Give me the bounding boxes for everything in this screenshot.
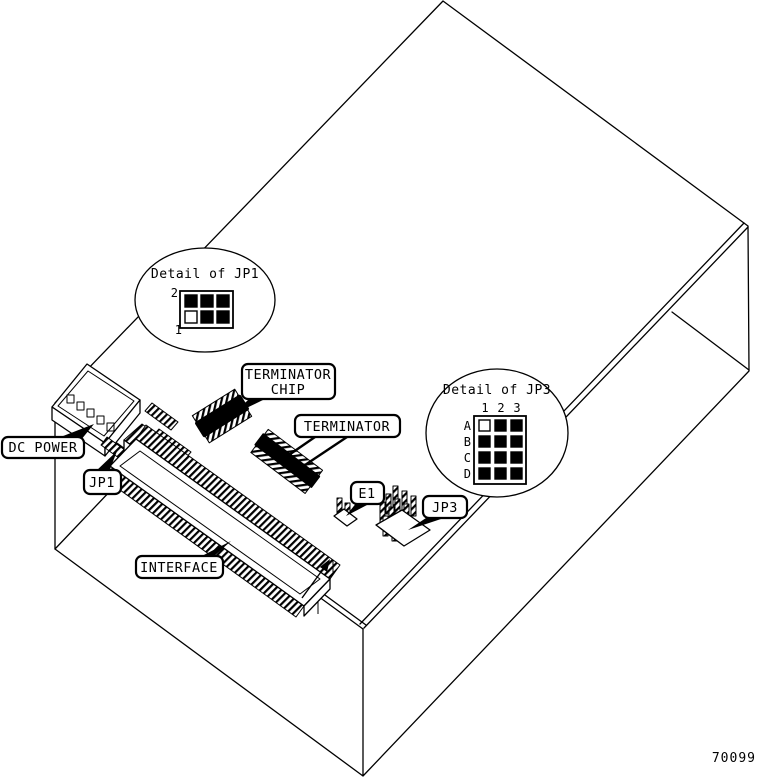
jp1-detail-pin	[217, 295, 229, 307]
jp3-label-text: JP3	[432, 500, 458, 516]
dc-power-label-text: DC POWER	[8, 440, 77, 456]
jp1-detail-title: Detail of JP1	[151, 267, 259, 282]
jp1-detail-callout: Detail of JP1 2 1	[135, 248, 275, 352]
jp3-detail-pin	[479, 436, 490, 447]
jp3-detail-callout: Detail of JP3 1 2 3 A B C D	[426, 369, 568, 497]
jp3-detail-col-label: 3	[513, 401, 520, 415]
jp3-detail-pin	[511, 468, 522, 479]
jp1-detail-pin	[185, 295, 197, 307]
e1-label-text: E1	[358, 486, 375, 502]
figure-board-location-diagram: Detail of JP1 2 1 Detail of JP3 1 2 3 A …	[0, 0, 758, 777]
part-number: 70099	[712, 751, 756, 766]
jp3-detail-pin	[511, 436, 522, 447]
jp1-detail-pin	[201, 311, 213, 323]
jp1-detail-row2-label: 2	[171, 286, 178, 300]
jp3-detail-pin	[479, 452, 490, 463]
jp3-detail-pin	[495, 436, 506, 447]
terminator-chip-label-text-line1: TERMINATOR	[245, 367, 332, 383]
jp3-detail-row-label: A	[464, 419, 472, 433]
jp3-detail-pin	[511, 420, 522, 431]
jp3-detail-pin	[479, 420, 490, 431]
jp1-label-text: JP1	[89, 475, 115, 491]
jp3-detail-pin	[495, 420, 506, 431]
diagram-canvas: Detail of JP1 2 1 Detail of JP3 1 2 3 A …	[0, 0, 758, 777]
jp3-detail-pin	[495, 468, 506, 479]
jp3-detail-col-label: 1	[481, 401, 488, 415]
jp1-detail-pin	[201, 295, 213, 307]
jp3-detail-pin	[479, 468, 490, 479]
jp3-detail-col-label: 2	[497, 401, 504, 415]
terminator-label-text: TERMINATOR	[304, 419, 391, 435]
jp3-pin	[411, 496, 416, 516]
interface-label-text: INTERFACE	[140, 560, 218, 576]
jp1-detail-pin	[185, 311, 197, 323]
jp3-detail-row-label: C	[464, 451, 471, 465]
jp3-detail-pin	[495, 452, 506, 463]
jp3-detail-row-label: B	[464, 435, 471, 449]
jp1-detail-pin	[217, 311, 229, 323]
terminator-chip-label-text-line2: CHIP	[271, 382, 306, 398]
jp3-detail-row-label: D	[464, 467, 471, 481]
jp3-detail-pin	[511, 452, 522, 463]
jp3-detail-title: Detail of JP3	[443, 383, 551, 398]
